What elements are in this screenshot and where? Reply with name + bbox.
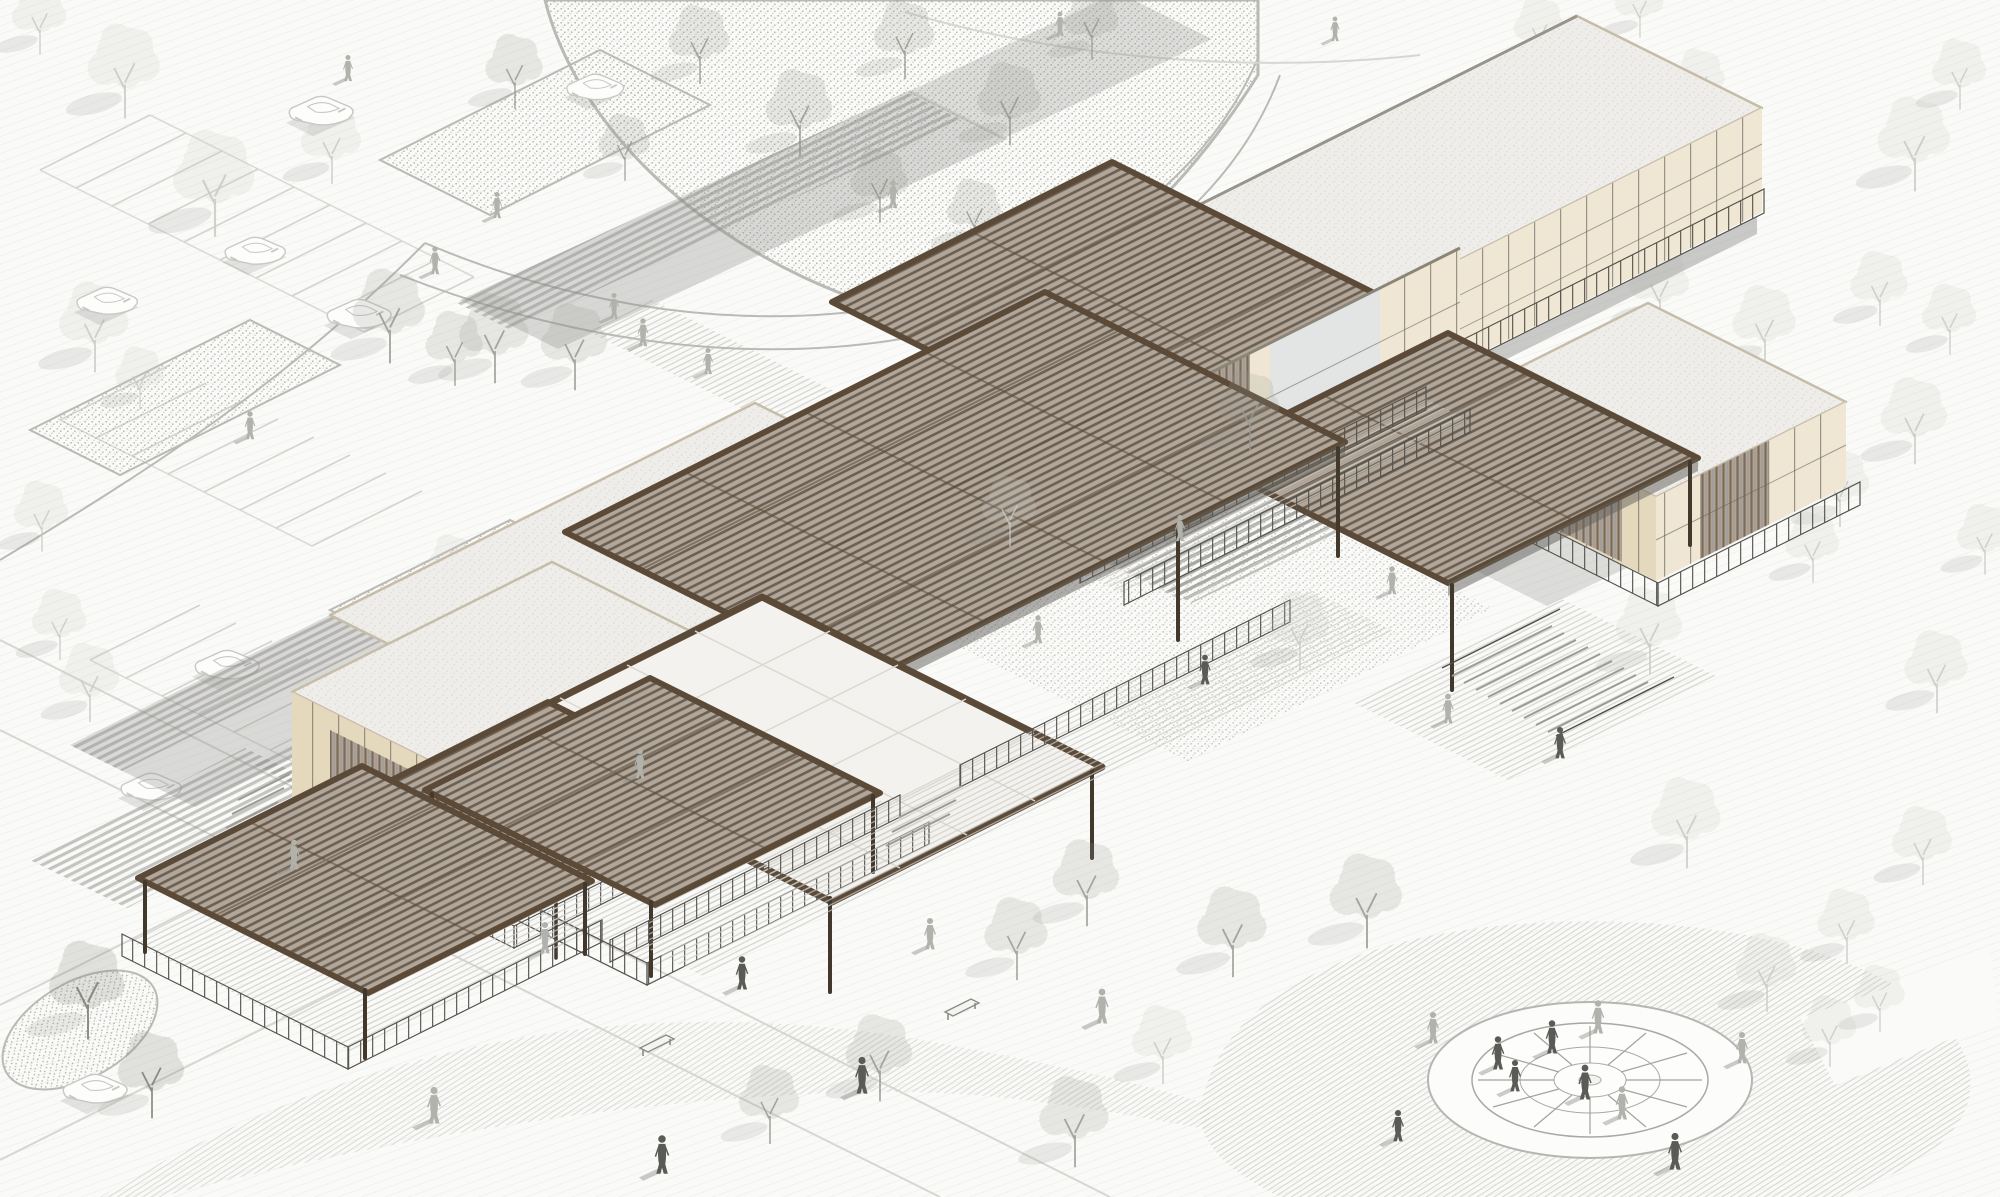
architectural-rendering [0,0,2000,1197]
site-rendering-canvas [0,0,2000,1197]
